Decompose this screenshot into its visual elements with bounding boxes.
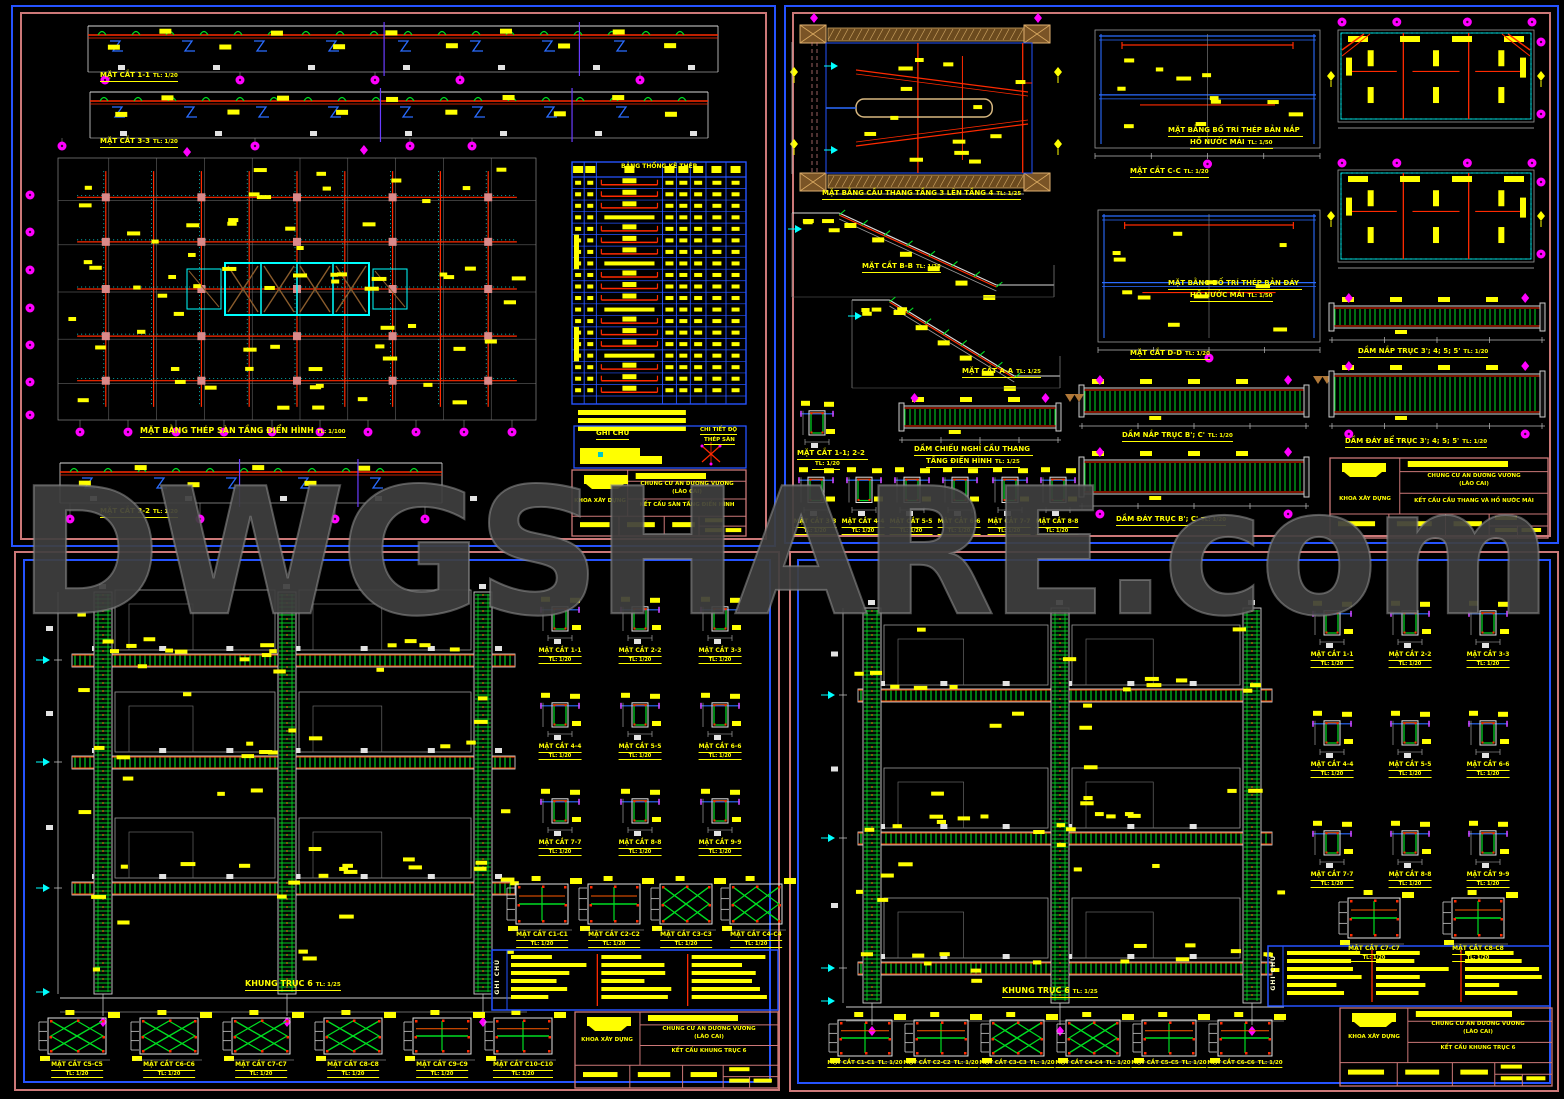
cad-graphics-layer	[0, 0, 1564, 1099]
cad-drawing-canvas: MẶT CẮT 1-1TL: 1/20MẶT CẮT 3-3TL: 1/20MẶ…	[0, 0, 1564, 1099]
